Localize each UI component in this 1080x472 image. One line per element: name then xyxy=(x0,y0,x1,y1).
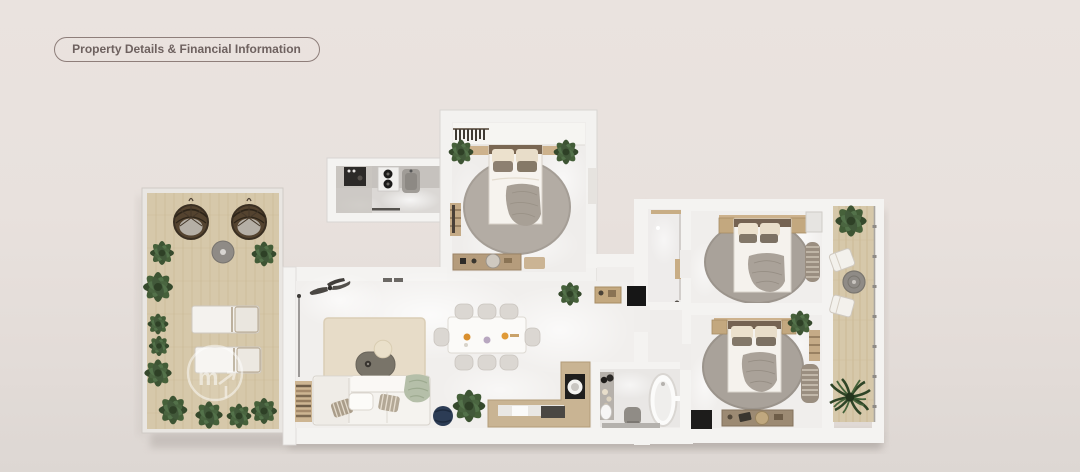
svg-text:m: m xyxy=(198,364,218,390)
